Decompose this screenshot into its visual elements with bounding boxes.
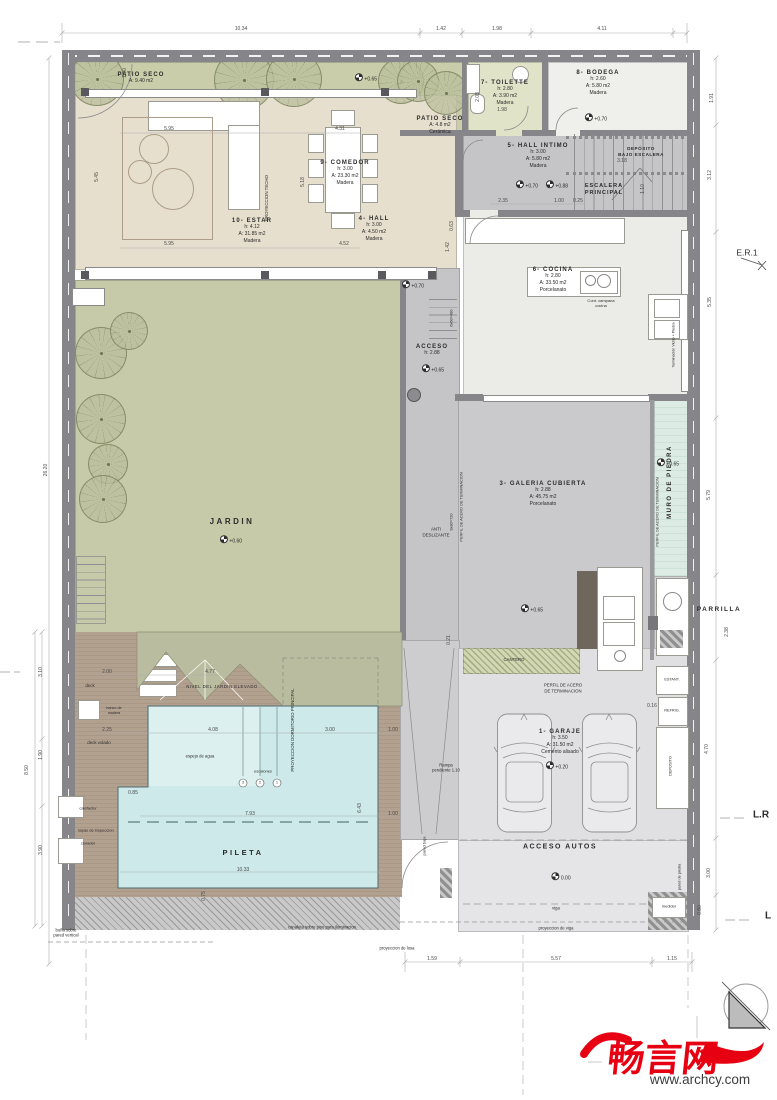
dim-6.43: 6.43 — [357, 803, 364, 813]
dim-3.00: 3.00 — [706, 868, 713, 878]
dim-5.57: 5.57 — [551, 956, 561, 963]
dim-4.70: 4.70 — [704, 744, 711, 754]
room-label-patio-seco-2: PATIO SECOA: 4.8 m2Cerámica — [416, 116, 463, 136]
level-marker-icon — [585, 113, 593, 121]
dim-4.08: 4.08 — [208, 727, 218, 734]
room-label-galeria: 3- GALERIA CUBIERTAh: 2.88A: 45.75 m2Por… — [500, 481, 587, 507]
room-detail: Cerámica — [416, 129, 463, 136]
room-detail: A: 23.30 m2 — [320, 173, 369, 180]
deck: deck — [85, 683, 94, 689]
deposito-bajo-escalera: DEPÓSITO BAJO ESCALERA — [618, 146, 664, 158]
room-label-acceso: ACCESOh: 2.88 — [416, 344, 448, 357]
room-detail: Madera — [232, 238, 272, 245]
lvl-garaje: +0.20 — [546, 761, 568, 771]
pared-de-piedra: pared de piedra — [678, 864, 683, 891]
room-detail: Porcelanato — [500, 501, 587, 508]
dim-3.10: 3.10 — [38, 667, 45, 677]
nivel-jardin-elevado: NIVEL DEL JARDIN ELEVADO — [186, 684, 258, 690]
room-detail: h: 2.88 — [416, 350, 448, 357]
room-detail: h: 3.00 — [359, 222, 390, 229]
deposito: DEPOSITO — [669, 756, 674, 776]
dim-0.16: 0.16 — [647, 703, 657, 710]
dim-2.38: 2.38 — [724, 627, 731, 637]
medidor: medidor — [662, 903, 676, 908]
room-label-garaje: 1- GARAJEh: 3.50A: 31.50 m2Cemento alisa… — [539, 729, 581, 755]
clorador: clorador — [81, 840, 95, 845]
room-label-estar: 10- ESTARh: 4.12A: 31.85 m2Madera — [232, 218, 272, 244]
parrilla: PARRILLA — [697, 606, 741, 614]
refrig: REFRIG. — [664, 709, 679, 714]
room-label-cocina: 6- COCINAh: 2.80A: 33.50 m2Porcelanato — [533, 267, 574, 293]
dim-1.98: 1.98 — [492, 26, 502, 33]
dim-1.00: 1.00 — [388, 811, 398, 818]
espejo-de-agua: espejo de agua — [186, 753, 215, 758]
rampa: Rampa pendiente 1.10 — [432, 763, 460, 774]
lvl-acceso-autos: 0.00 — [551, 872, 570, 882]
room-detail: A: 3.90 m2 — [481, 93, 529, 100]
escalera-principal: ESCALERA PRINCIPAL — [585, 183, 623, 197]
room-label-patio-seco-1: PATIO SECOA: 9.40 m2 — [117, 72, 164, 85]
lvl-hallintimo-a: +0.70 — [516, 180, 538, 190]
campana-cocina: Cont. campana cocina — [587, 298, 614, 308]
dim-1.42: 1.42 — [436, 26, 446, 33]
room-label-comedor: 9- COMEDORh: 3.00A: 23.30 m2Madera — [320, 160, 369, 186]
esc-6x60: 6x60=480 — [448, 309, 453, 326]
estant: ESTANT. — [664, 678, 679, 683]
dim-5.95: 5.95 — [164, 126, 174, 133]
room-detail: A: 5.80 m2 — [508, 156, 569, 163]
room-detail: h: 4.12 — [232, 224, 272, 231]
buna-pared: buña sobre pared vertical — [53, 928, 78, 939]
muro-de-piedra: MURO DE PIEDRA — [667, 445, 675, 519]
jardin: JARDIN — [210, 517, 255, 527]
dim-5.18: 5.18 — [300, 177, 307, 187]
room-detail: A: 31.85 m2 — [232, 231, 272, 238]
dim-26.20: 26.20 — [43, 464, 50, 477]
room-detail: A: 31.50 m2 — [539, 742, 581, 749]
dim-0.80: 0.80 — [697, 905, 704, 915]
dim-0.85: 0.85 — [128, 790, 138, 797]
room-detail: A: 4.8 m2 — [416, 122, 463, 129]
dim-1.10: 1.10 — [640, 184, 647, 194]
proyeccion-dormitorio: PROYECCION DORMITORIO PRINCIPAL — [290, 688, 296, 771]
level-marker-icon — [402, 280, 410, 288]
dim-0.25: 0.25 — [573, 198, 583, 205]
dim-3.00: 3.00 — [325, 727, 335, 734]
dim-0.21: 0.21 — [446, 635, 453, 645]
perfil-acero-3: PERFIL DE ACERO DE TERMINACION — [544, 682, 582, 693]
dim-5.79: 5.79 — [706, 490, 713, 500]
dim-4.52: 4.52 — [339, 241, 349, 248]
level-marker-icon — [546, 761, 554, 769]
lvl-bodega: +0.70 — [585, 113, 607, 123]
room-detail: h: 3.00 — [320, 166, 369, 173]
dim-8.50: 8.50 — [24, 765, 31, 775]
lvl-muro: +0.65 — [657, 458, 679, 468]
dim-2.35: 2.35 — [498, 198, 508, 205]
room-label-bodega: 8- BODEGAh: 2.60A: 5.80 m2Madera — [576, 70, 619, 96]
canaleta: canaleta sobre piso para iluminacion — [288, 924, 356, 929]
anti-deslizante: ANTI DESLIZANTE — [422, 526, 449, 537]
esc-9x80: 9x80=720 — [448, 513, 453, 530]
level-marker-icon — [657, 458, 665, 466]
level-marker-icon — [546, 180, 554, 188]
terminacion-vidrio: Terminación Vidrio + Piedra — [672, 322, 677, 367]
calefactor: calefactor — [79, 805, 96, 810]
level-marker-icon — [521, 604, 529, 612]
watermark-url: www.archcy.com — [650, 1072, 750, 1087]
room-detail: Porcelanato — [533, 287, 574, 294]
dim-4.31: 4.31 — [335, 126, 345, 133]
escalones: escalones — [254, 768, 272, 773]
proyeccion-techo: PROYECCION TECHO — [264, 175, 270, 221]
room-detail: A: 45.75 m2 — [500, 494, 587, 501]
dim-1.98: 1.98 — [497, 107, 507, 114]
lvl-jardin: +0.60 — [220, 535, 242, 545]
dim-4.11: 4.11 — [597, 26, 606, 33]
dim-1.00: 1.00 — [388, 727, 398, 734]
room-detail: A: 9.40 m2 — [117, 78, 164, 85]
level-marker-icon — [516, 180, 524, 188]
acceso-autos: ACCESO AUTOS — [523, 842, 597, 851]
level-marker-icon — [551, 872, 559, 880]
room-detail: h: 2.88 — [500, 487, 587, 494]
room-detail: A: 33.50 m2 — [533, 280, 574, 287]
room-detail: Madera — [359, 236, 390, 243]
room-detail: Madera — [320, 180, 369, 187]
perfil-acero-2: PERFIL DE ACERO DE TERMINACION — [654, 477, 659, 546]
room-detail: h: 3.00 — [508, 149, 569, 156]
lr: L.R — [753, 809, 769, 822]
dim-1.90: 1.90 — [38, 750, 45, 760]
cantero: CANTERO — [503, 657, 524, 663]
dim-1.59: 1.59 — [427, 956, 437, 963]
dim-0.63: 0.63 — [449, 221, 456, 231]
banco-de-madera: banco de madera — [106, 706, 121, 716]
floor-plan-canvas: JARDINPILETAACCESO AUTOSPARRILLAMURO DE … — [0, 0, 777, 1100]
perfil-acero-1: PERFIL DE ACERO DE TERMINACION — [458, 472, 463, 541]
esc-num-1: 1 — [276, 781, 278, 786]
dim-5.45: 5.45 — [94, 172, 101, 182]
dim-3.12: 3.12 — [707, 170, 714, 180]
level-marker-icon — [355, 73, 363, 81]
dim-4.77: 4.77 — [205, 669, 215, 676]
l: L — [765, 910, 771, 923]
er1: E.R.1 — [736, 247, 757, 258]
dim-10.33: 10.33 — [237, 867, 250, 874]
dim-5.95: 5.95 — [164, 241, 174, 248]
proyeccion-viga: proyeccion de viga — [539, 925, 574, 930]
room-detail: h: 2.80 — [481, 86, 529, 93]
room-detail: A: 4.50 m2 — [359, 229, 390, 236]
dim-1.00: 1.00 — [554, 198, 564, 205]
room-label-hall-intimo: 5- HALL INTIMOh: 3.00A: 5.80 m2Madera — [508, 143, 569, 169]
esc-num-3: 3 — [242, 781, 244, 786]
room-label-hall: 4- HALLh: 3.00A: 4.50 m2Madera — [359, 216, 390, 242]
room-detail: Madera — [508, 163, 569, 170]
level-marker-icon — [422, 364, 430, 372]
dim-7.93: 7.93 — [245, 811, 255, 818]
tapas-inspeccion: tapas de inspeccion — [78, 827, 113, 832]
room-detail: h: 2.60 — [576, 76, 619, 83]
viga: viga — [552, 905, 560, 910]
pared-baja: pared baja — [421, 837, 426, 856]
dim-2.00: 2.00 — [102, 669, 112, 676]
level-marker-icon — [220, 535, 228, 543]
labels-layer: JARDINPILETAACCESO AUTOSPARRILLAMURO DE … — [0, 0, 777, 1100]
lvl-patio: +0.65 — [355, 73, 377, 83]
dim-2.25: 2.25 — [102, 727, 112, 734]
room-detail: h: 3.50 — [539, 735, 581, 742]
deck-volado: deck volado — [87, 740, 110, 746]
pileta: PILETA — [222, 848, 263, 858]
dim-1.15: 1.15 — [667, 956, 677, 963]
room-detail: A: 5.80 m2 — [576, 83, 619, 90]
lvl-corredor: +0.70 — [402, 280, 424, 290]
dim-3.18: 3.18 — [617, 158, 627, 165]
dim-0.75: 0.75 — [201, 891, 208, 901]
lvl-acceso: +0.65 — [422, 364, 444, 374]
lvl-galeria: +0.65 — [521, 604, 543, 614]
room-detail: h: 2.80 — [533, 273, 574, 280]
dim-5.35: 5.35 — [707, 297, 714, 307]
proyeccion-losa: proyeccion de losa — [380, 945, 415, 950]
dim-3.90: 3.90 — [38, 845, 45, 855]
lvl-hallintimo-b: +0.88 — [546, 180, 568, 190]
dim-1.91: 1.91 — [709, 93, 716, 103]
room-detail: Madera — [576, 90, 619, 97]
room-detail: Madera — [481, 100, 529, 107]
esc-num-2: 2 — [259, 781, 261, 786]
room-detail: Cemento alisado — [539, 749, 581, 756]
dim-10.34: 10.34 — [235, 26, 248, 33]
dim-1.42: 1.42 — [445, 242, 452, 252]
room-label-toilette: 7- TOILETTEh: 2.80A: 3.90 m2Madera — [481, 80, 529, 106]
